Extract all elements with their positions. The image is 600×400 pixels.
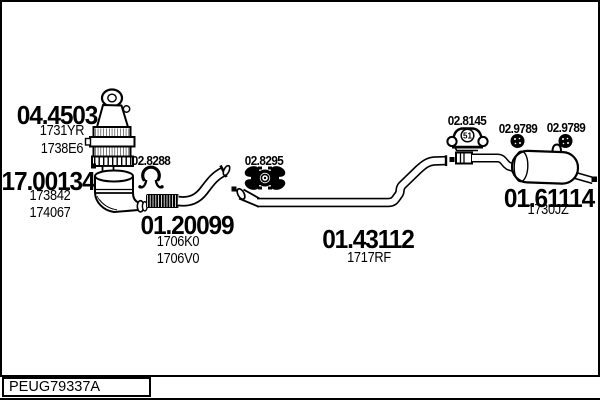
flex-pipe-drawing — [146, 194, 179, 208]
grommet-icon — [511, 134, 525, 148]
fitting-number-grommet: 02.9789 — [499, 122, 538, 135]
part-code: 1731YR — [40, 124, 85, 139]
part-code: 1706V0 — [157, 252, 199, 267]
reference-box: PEUG79337A — [2, 377, 151, 397]
front-pipe-drawing — [178, 165, 237, 202]
part-code: 1738E6 — [41, 142, 83, 157]
clamp-icon — [138, 167, 163, 190]
hanger-bracket-icon: 51 — [447, 129, 487, 151]
hanger-badge: 51 — [463, 132, 472, 141]
fitting-number-clamp: 02.8288 — [132, 154, 171, 167]
part-code: 174067 — [29, 206, 70, 221]
part-code: 1717RF — [347, 251, 391, 266]
fitting-number-hanger-bracket: 02.8145 — [448, 114, 487, 127]
rubber-mount-icon — [243, 164, 287, 192]
fitting-number-grommet: 02.9789 — [547, 121, 586, 134]
part-code: 1706K0 — [157, 235, 199, 250]
part-number-centre-pipe: 01.43112 — [322, 226, 414, 252]
exhaust-diagram-page: 51 04.4503 1731YR 1738E6 17.00134 173842… — [0, 0, 600, 400]
fitting-number-rubber-mount: 02.8295 — [245, 154, 284, 167]
second-catalyst-drawing — [95, 171, 147, 213]
part-code: 1730JZ — [528, 203, 569, 218]
reference-label: PEUG79337A — [9, 379, 100, 395]
grommet-icon — [559, 134, 573, 148]
part-code: 173842 — [29, 189, 70, 204]
